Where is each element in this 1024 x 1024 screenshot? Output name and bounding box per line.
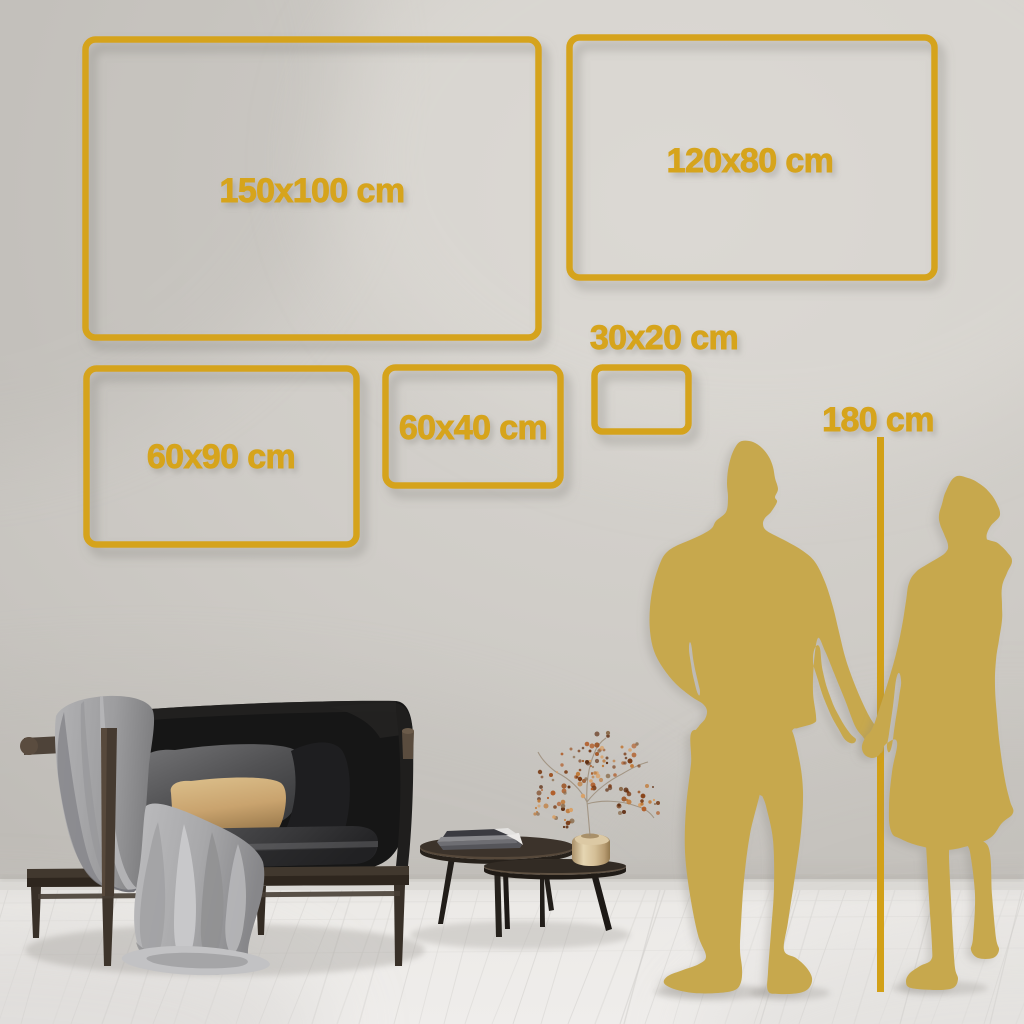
svg-text:120x80 cm: 120x80 cm xyxy=(667,142,834,180)
svg-text:60x90 cm: 60x90 cm xyxy=(147,438,295,476)
svg-text:60x40 cm: 60x40 cm xyxy=(399,409,547,447)
svg-text:30x20 cm: 30x20 cm xyxy=(590,319,738,357)
svg-text:150x100 cm: 150x100 cm xyxy=(220,172,405,210)
svg-text:180 cm: 180 cm xyxy=(822,401,934,439)
